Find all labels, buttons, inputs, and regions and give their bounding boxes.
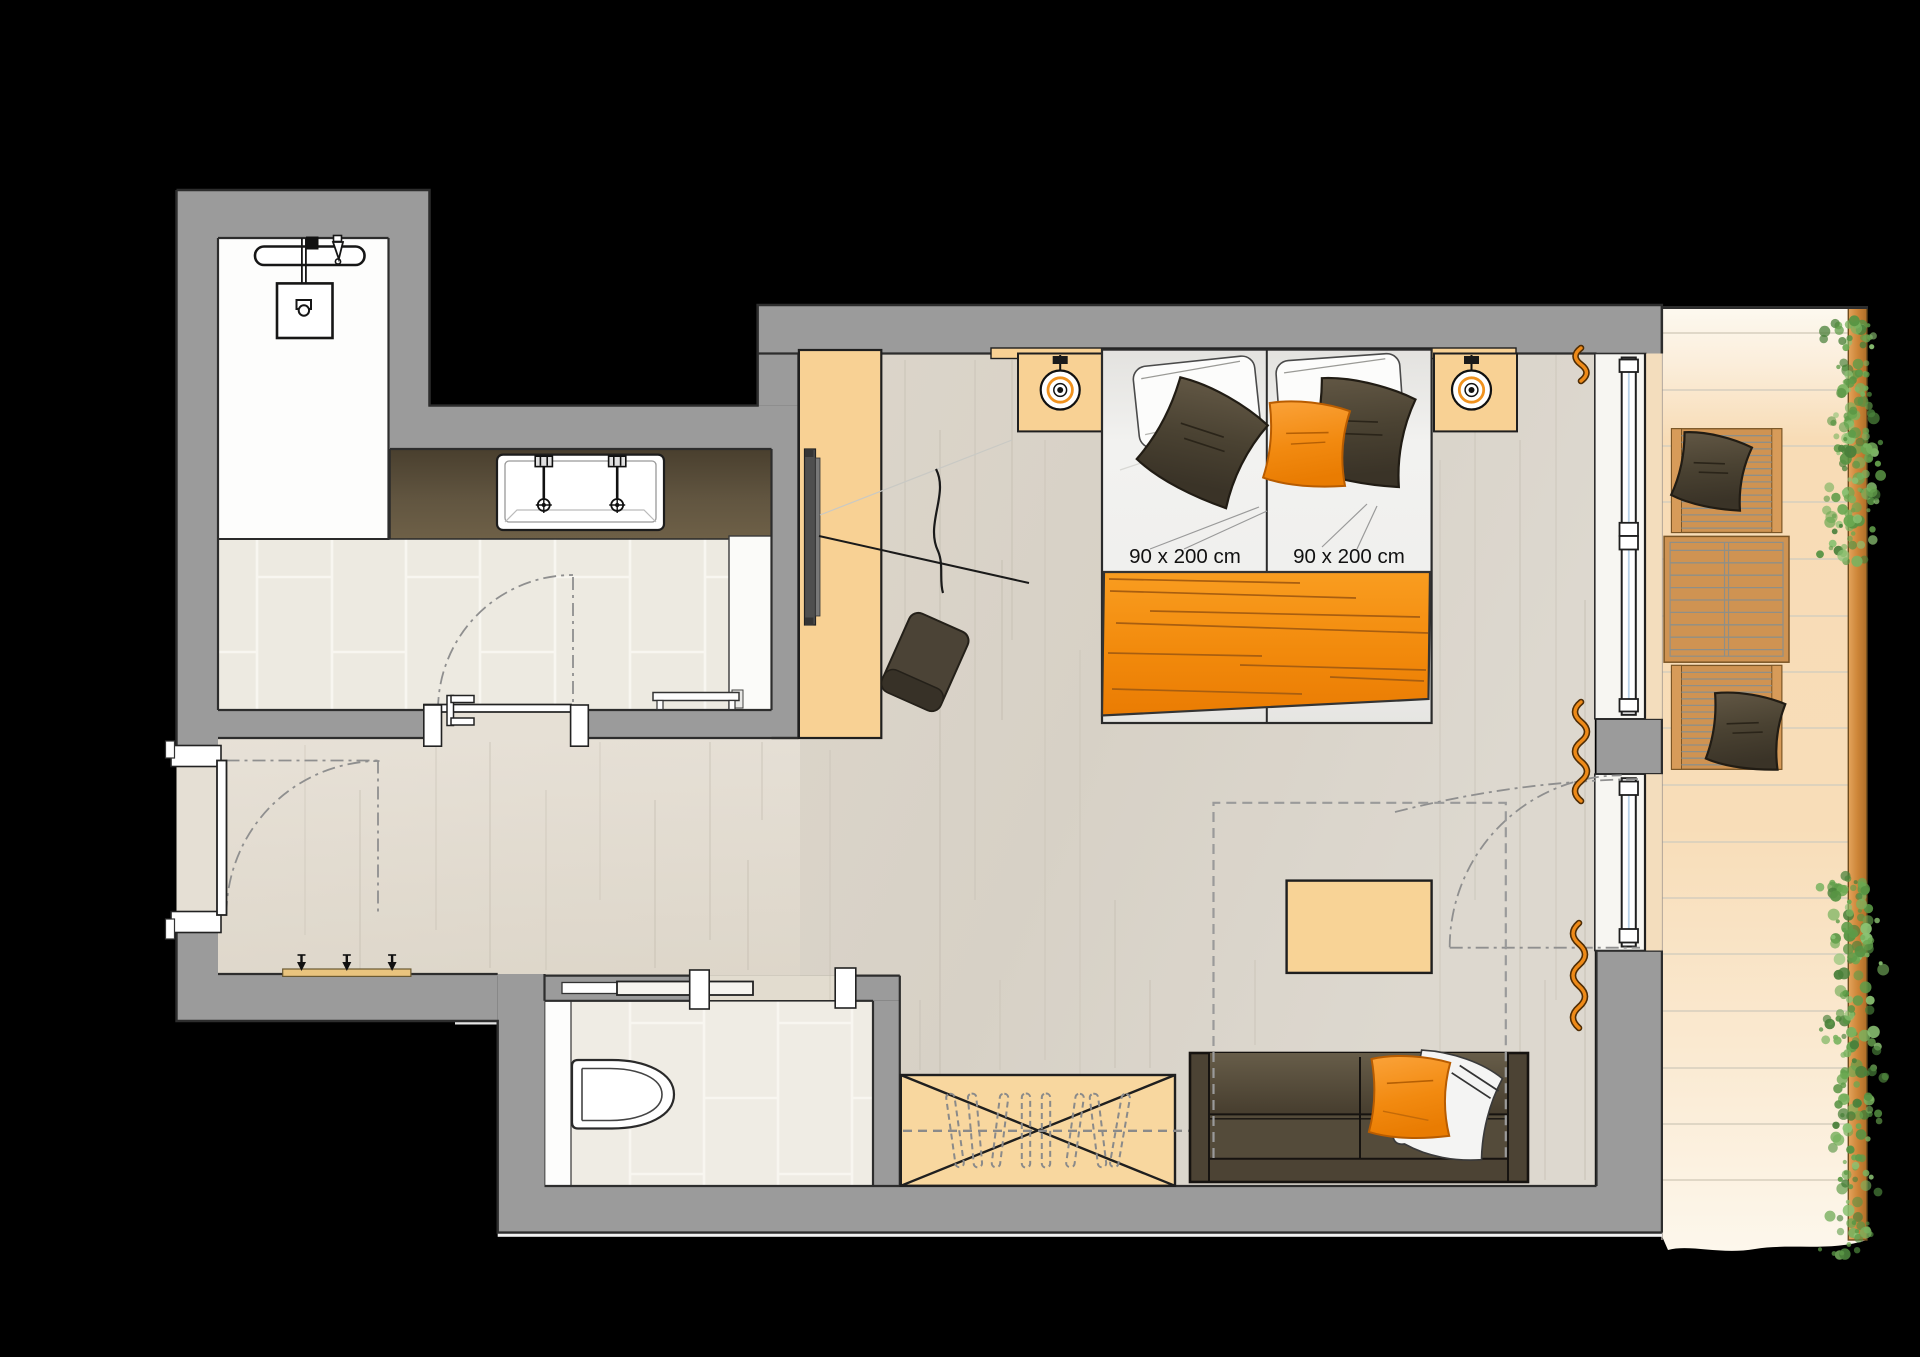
svg-text:90 x 200 cm: 90 x 200 cm <box>1293 545 1405 568</box>
